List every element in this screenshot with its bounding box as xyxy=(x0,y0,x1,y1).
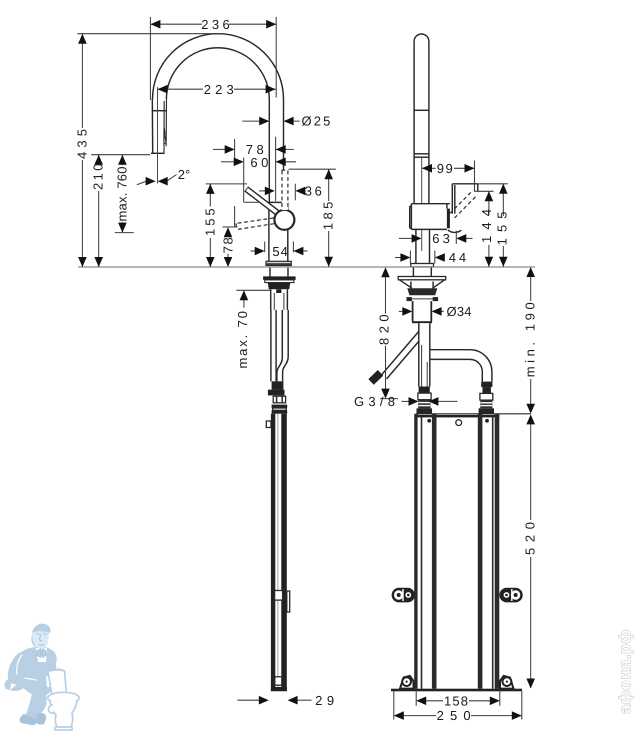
svg-text:435: 435 xyxy=(74,129,89,159)
svg-text:185: 185 xyxy=(320,202,335,231)
svg-text:Ø25: Ø25 xyxy=(302,114,331,129)
svg-text:2°: 2° xyxy=(178,167,190,182)
svg-text:155: 155 xyxy=(494,211,509,245)
svg-text:155: 155 xyxy=(203,208,218,236)
svg-text:144: 144 xyxy=(479,209,494,243)
svg-text:250: 250 xyxy=(437,708,471,723)
svg-text:223: 223 xyxy=(204,82,234,97)
svg-text:54: 54 xyxy=(272,244,288,259)
svg-text:520: 520 xyxy=(523,522,538,555)
svg-text:афоня.рф: афоня.рф xyxy=(617,630,634,714)
svg-text:820: 820 xyxy=(376,314,391,345)
svg-text:Ø34: Ø34 xyxy=(447,304,472,319)
svg-text:G3/8: G3/8 xyxy=(354,394,395,409)
svg-text:158: 158 xyxy=(444,693,468,708)
svg-text:210: 210 xyxy=(91,164,106,191)
svg-text:99: 99 xyxy=(437,161,453,176)
svg-text:max. 760: max. 760 xyxy=(114,167,129,222)
svg-text:78: 78 xyxy=(220,237,235,253)
svg-text:236: 236 xyxy=(201,17,230,32)
